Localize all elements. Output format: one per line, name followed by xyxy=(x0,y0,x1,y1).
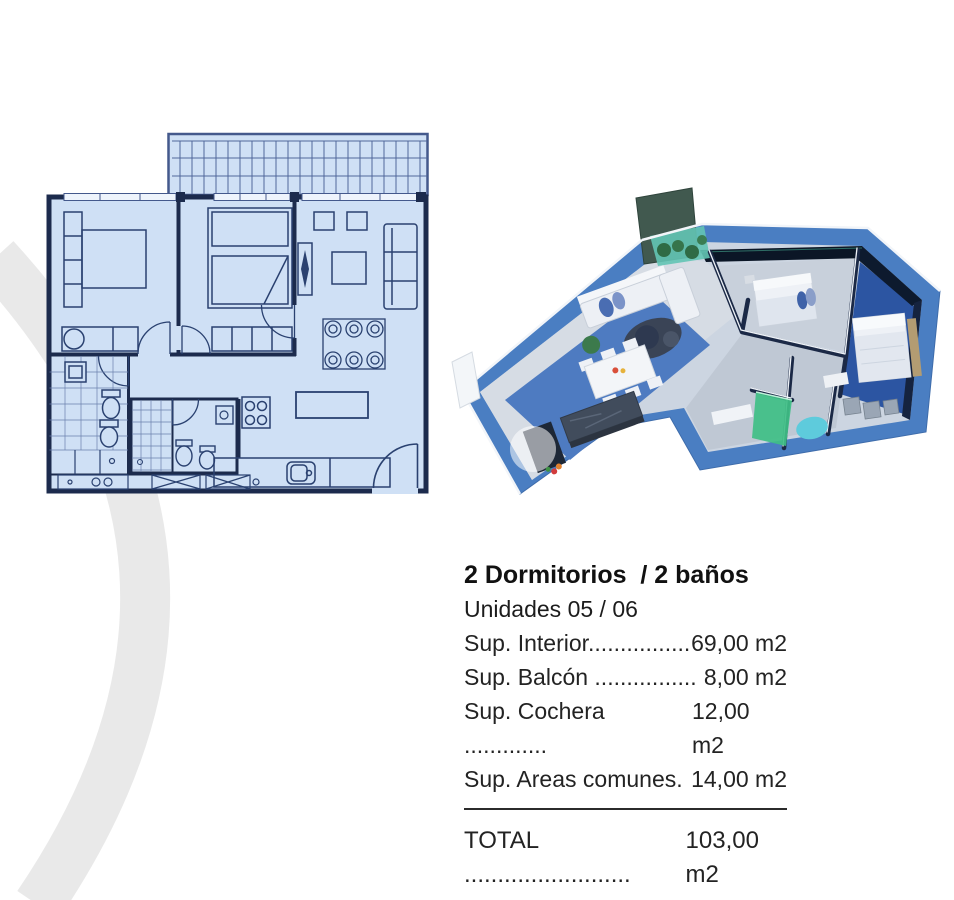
total-label: TOTAL ......................... xyxy=(464,824,686,892)
white-circle-watermark xyxy=(510,426,556,472)
balcony-deck xyxy=(169,134,428,195)
spec-row-interior: Sup. Interior................ 69,00 m2 xyxy=(464,626,787,660)
total-value: 103,00 m2 xyxy=(686,824,787,892)
unit-title: 2 Dormitorios / 2 baños xyxy=(464,559,787,592)
floorplan-2d xyxy=(40,125,440,500)
spec-row-balcon: Sup. Balcón ................ 8,00 m2 xyxy=(464,660,787,694)
door-panel-3d xyxy=(452,352,480,408)
spec-value: 8,00 m2 xyxy=(704,660,787,694)
spec-label: Sup. Interior................ xyxy=(464,626,690,660)
brochure-page: 2 Dormitorios / 2 baños Unidades 05 / 06… xyxy=(0,0,954,900)
spec-row-areas-comunes: Sup. Areas comunes. 14,00 m2 xyxy=(464,762,787,796)
spec-label: Sup. Balcón ................ xyxy=(464,660,697,694)
balcony-3d xyxy=(636,188,710,266)
floorplan-3d xyxy=(450,175,954,515)
spec-value: 14,00 m2 xyxy=(691,762,787,796)
unit-subtitle: Unidades 05 / 06 xyxy=(464,592,787,626)
divider-rule xyxy=(464,808,787,810)
spec-row-cochera: Sup. Cochera ............. 12,00 m2 xyxy=(464,694,787,762)
spec-label: Sup. Areas comunes. xyxy=(464,762,683,796)
unit-spec-block: 2 Dormitorios / 2 baños Unidades 05 / 06… xyxy=(464,559,787,892)
spec-label: Sup. Cochera ............. xyxy=(464,694,692,762)
spec-value: 12,00 m2 xyxy=(692,694,787,762)
total-row: TOTAL ......................... 103,00 m… xyxy=(464,824,787,892)
windows xyxy=(64,192,426,202)
spec-value: 69,00 m2 xyxy=(691,626,787,660)
